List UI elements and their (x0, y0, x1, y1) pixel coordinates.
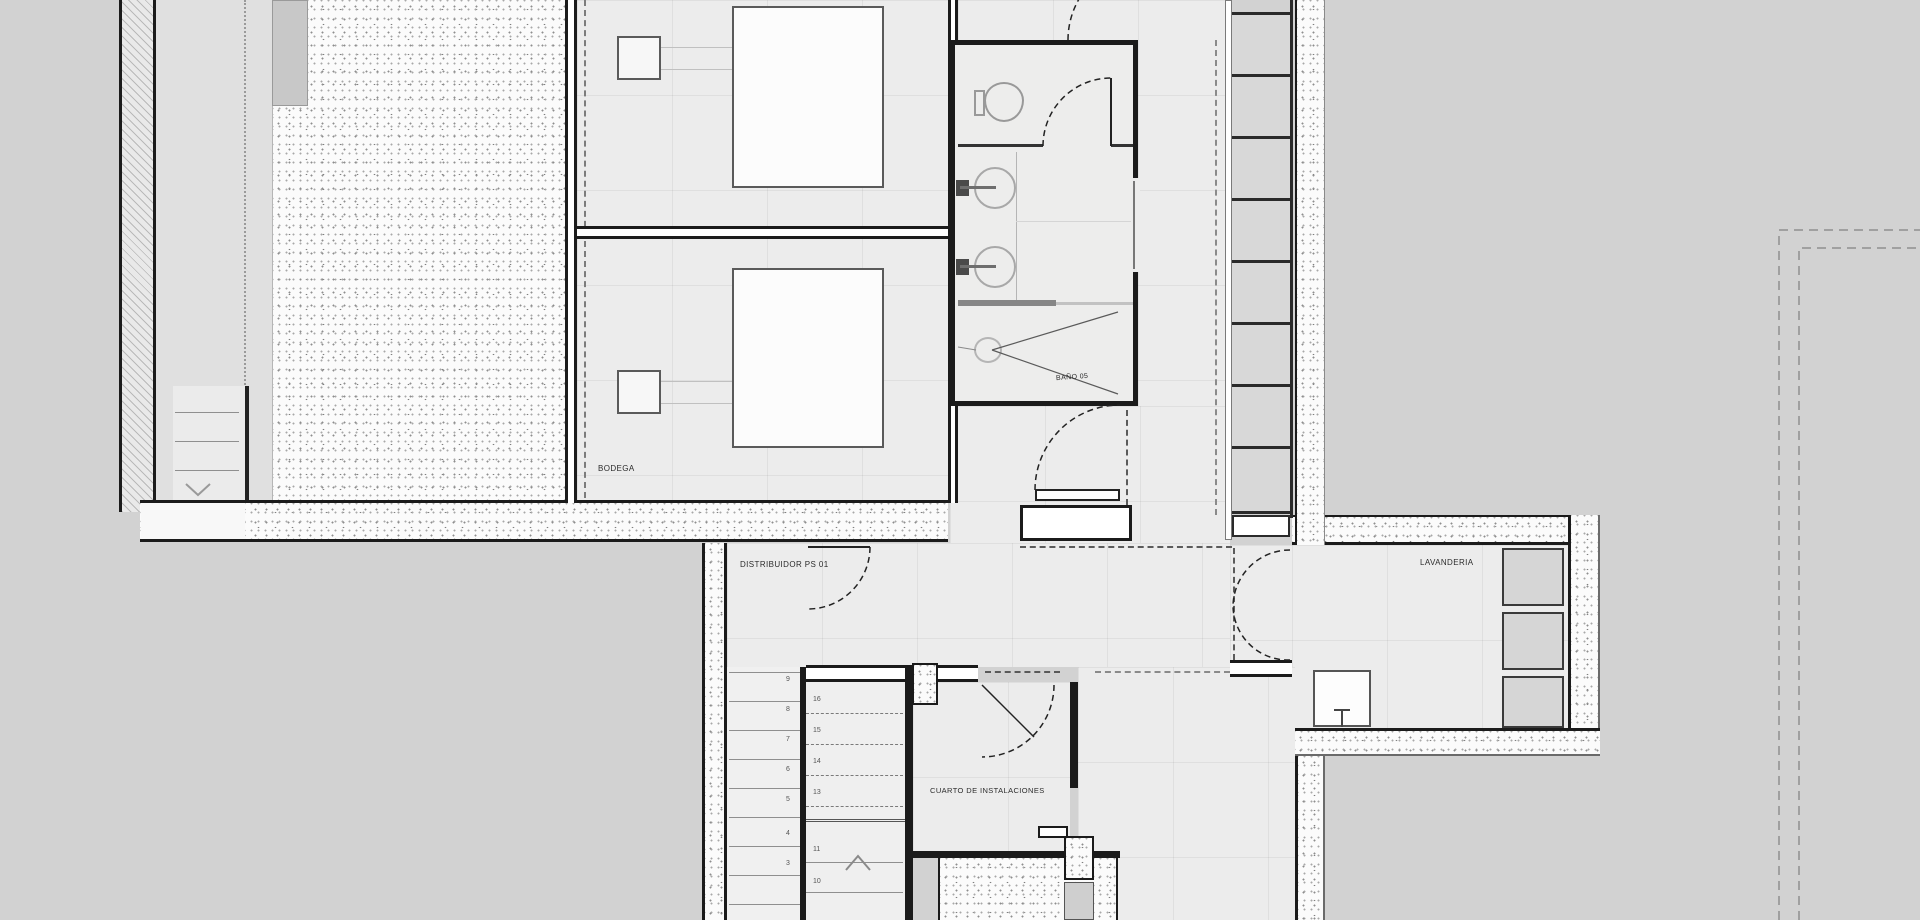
stair-number: 16 (813, 696, 821, 703)
double-door-dashed-line (1233, 548, 1235, 660)
stair-number: 6 (786, 766, 790, 773)
stair-number: 15 (813, 727, 821, 734)
sink-1-bar (960, 186, 996, 189)
stair-tread (729, 875, 800, 876)
closet-back-wall (1295, 0, 1325, 545)
stair-tread-dashed (806, 775, 903, 776)
stair-tread (729, 759, 800, 760)
wc-partition-right (1111, 144, 1133, 147)
toilet-tank (974, 90, 985, 116)
cuarto-pillar (1064, 836, 1094, 880)
stair-tread-dashed (806, 713, 903, 714)
bath-sliding-door-leaf (1133, 181, 1135, 269)
lowerroom-opening-dashed (1095, 671, 1230, 673)
bodega-partition-wall (577, 226, 948, 239)
stair-left-flight (727, 667, 806, 920)
bodega-bottom-wall (140, 500, 948, 542)
lavanderia-right-wall (1568, 515, 1600, 756)
label-lavanderia: LAVANDERIA (1420, 558, 1474, 567)
stair-number: 9 (786, 676, 790, 683)
bodega-dashed-line (584, 0, 586, 498)
bodega-bottom-wall-white (141, 503, 245, 539)
stair-tread (729, 788, 800, 789)
terrace-stair-tread (175, 470, 239, 471)
stair-number: 5 (786, 796, 790, 803)
label-cuarto-instalaciones: CUARTO DE INSTALACIONES (930, 786, 1045, 795)
curtain-line (661, 69, 732, 70)
setback-dotted-line (244, 0, 246, 400)
bodega-left-wall (565, 0, 577, 503)
corridor-top-dashed (1020, 546, 1232, 548)
stairroom-right-wall (905, 667, 913, 920)
bed-2 (732, 268, 884, 448)
closet-dashed-line (1215, 40, 1217, 515)
terrace-planter-block (272, 0, 308, 106)
retaining-wall-hatched (119, 0, 156, 512)
washer-unit (1502, 548, 1564, 606)
closet-cell (1232, 384, 1292, 449)
lowerroom-right-wall (1295, 756, 1325, 920)
corridor-bottom-wall (806, 665, 978, 682)
hall-door-leaf (1035, 489, 1120, 501)
terrace-stairs (173, 386, 249, 506)
laundry-counter-unit (1502, 676, 1564, 728)
stair-break-line (806, 819, 905, 822)
terrace-stair-tread (175, 441, 239, 442)
stair-number: 8 (786, 706, 790, 713)
closet-right-edge (1290, 0, 1293, 518)
stair-tread (806, 892, 903, 893)
sink-2-bar (960, 265, 996, 268)
closet-left-strip (1225, 0, 1232, 540)
stair-number: 11 (813, 846, 820, 853)
closet-cell (1232, 198, 1292, 263)
laundry-sink (1313, 670, 1371, 727)
corridor-pillar (912, 663, 938, 705)
closet-cell (1232, 446, 1292, 514)
closet-cell (1232, 136, 1292, 201)
stair-number: 7 (786, 736, 790, 743)
lavanderia-bottom-wall (1295, 728, 1600, 756)
lavanderia-left-wall-band (1230, 660, 1292, 677)
shower-partition (958, 300, 1056, 306)
closet-cell (1232, 260, 1292, 325)
cuarto-door-opening-dashed (985, 671, 1060, 673)
stair-tread (729, 701, 800, 702)
terrace-gravel (272, 0, 566, 512)
label-bodega: BODEGA (598, 464, 635, 473)
stair-number: 14 (813, 758, 821, 765)
wc-partition-left (958, 144, 1043, 147)
stair-tread (806, 862, 903, 863)
corridor-top-wall-segment (1020, 505, 1132, 541)
stair-tread (729, 904, 800, 905)
cuarto-right-wall (1070, 682, 1078, 788)
stair-tread (729, 672, 800, 673)
curtain-line (661, 381, 732, 382)
stair-number: 3 (786, 860, 790, 867)
stair-number: 4 (786, 830, 790, 837)
curtain-line (661, 47, 732, 48)
curtain-line (661, 403, 732, 404)
shower-drain (974, 337, 1002, 363)
hall-dashed-line (1126, 410, 1128, 505)
shower-partition-light (1056, 302, 1133, 305)
closet-cell (1232, 322, 1292, 387)
plot-boundary-outer (1779, 230, 1920, 920)
dryer-unit (1502, 612, 1564, 670)
label-distribuidor: DISTRIBUIDOR PS 01 (740, 560, 829, 569)
nightstand-1 (617, 36, 661, 80)
lavanderia-top-wall (1292, 515, 1568, 545)
stair-tread (729, 846, 800, 847)
stair-tread (729, 817, 800, 818)
stair-tread (729, 730, 800, 731)
floor-plan-canvas: 9 8 7 6 5 4 3 16 15 14 13 11 10 (0, 0, 1920, 920)
closet-cell (1232, 74, 1292, 139)
bed-1 (732, 6, 884, 188)
vanity-line (1016, 152, 1017, 300)
cuarto-gray-block (1064, 882, 1094, 920)
bath-gridline (1016, 221, 1133, 222)
stair-number: 10 (813, 878, 821, 885)
terrace-stair-tread (175, 412, 239, 413)
stair-tread-dashed (806, 806, 903, 807)
stair-tread-dashed (806, 744, 903, 745)
doorzone-floor (1230, 545, 1292, 660)
nightstand-2 (617, 370, 661, 414)
corridor-left-wall (702, 543, 727, 920)
plot-boundary-inner (1799, 248, 1920, 920)
stair-number: 13 (813, 789, 821, 796)
closet-cell (1232, 12, 1292, 77)
closet-bottom-shelf (1232, 515, 1290, 537)
